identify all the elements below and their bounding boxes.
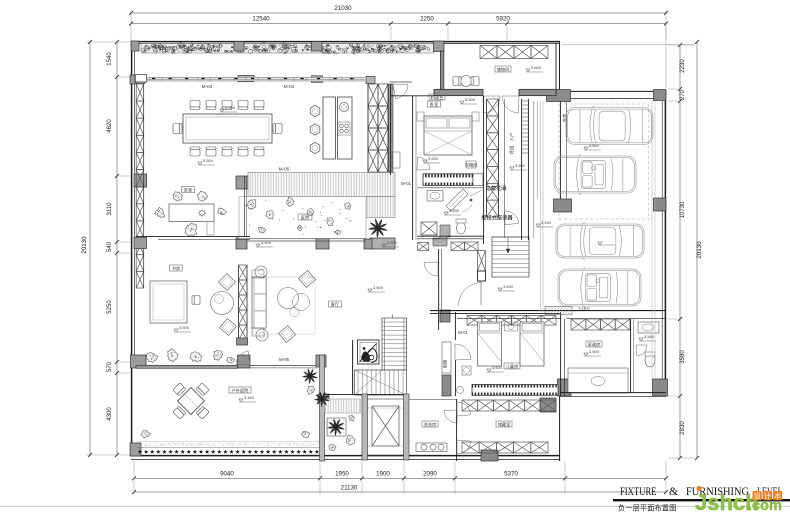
svg-text:3.585: 3.585 [644, 334, 655, 339]
svg-text:3580: 3580 [680, 350, 686, 364]
svg-text:M-04: M-04 [284, 84, 295, 89]
svg-text:570: 570 [107, 361, 113, 372]
svg-text:下3车位: 下3车位 [578, 306, 591, 311]
svg-text:5370: 5370 [504, 471, 518, 478]
svg-text:M-01: M-01 [458, 330, 468, 335]
svg-text:5.500: 5.500 [225, 105, 236, 110]
svg-text:5250: 5250 [107, 300, 113, 314]
svg-text:储物间: 储物间 [497, 66, 510, 73]
svg-text:&: & [669, 484, 678, 498]
svg-text:本: 本 [774, 491, 782, 501]
svg-text:3110: 3110 [107, 202, 113, 216]
svg-text:3.600: 3.600 [428, 156, 439, 161]
svg-text:户外庭院: 户外庭院 [232, 387, 250, 394]
svg-text:3.450: 3.450 [541, 220, 552, 225]
svg-text:3.600: 3.600 [492, 365, 503, 370]
svg-text:3.600: 3.600 [515, 163, 526, 168]
svg-text:2830: 2830 [680, 421, 686, 435]
svg-text:21130: 21130 [341, 484, 358, 491]
svg-text:1540: 1540 [107, 52, 113, 66]
svg-text:9040: 9040 [220, 471, 234, 478]
svg-text:M-06: M-06 [279, 357, 290, 362]
svg-text:20130: 20130 [81, 236, 88, 254]
svg-text:270: 270 [680, 89, 686, 100]
svg-text:540: 540 [107, 241, 113, 252]
svg-text:4620: 4620 [107, 119, 113, 133]
svg-text:3.600: 3.600 [373, 285, 384, 290]
svg-text:21030: 21030 [334, 5, 352, 12]
svg-text:计: 计 [764, 491, 772, 501]
svg-text:4300: 4300 [107, 407, 113, 421]
svg-text:书房: 书房 [172, 265, 180, 272]
svg-text:1950: 1950 [335, 471, 349, 478]
svg-text:5.500: 5.500 [203, 158, 214, 163]
svg-text:3.600: 3.600 [589, 349, 600, 354]
svg-text:3.450: 3.450 [503, 284, 514, 289]
svg-text:2230: 2230 [680, 59, 686, 73]
svg-text:儿童房: 儿童房 [506, 363, 519, 370]
svg-text:20130: 20130 [696, 241, 703, 259]
svg-text:储藏室: 储藏室 [498, 421, 511, 428]
svg-text:洗衣房: 洗衣房 [424, 421, 437, 428]
svg-text:隐藏花洒: 隐藏花洒 [486, 184, 507, 192]
svg-text:花园: 花园 [508, 146, 515, 154]
svg-text:庭院: 庭院 [301, 214, 310, 221]
svg-text:2090: 2090 [423, 471, 437, 478]
svg-text:W-01: W-01 [401, 181, 412, 186]
svg-text:3.600: 3.600 [261, 240, 272, 245]
svg-text:3.550: 3.550 [449, 208, 460, 213]
svg-text:2250: 2250 [420, 16, 434, 23]
svg-text:FIXTURE: FIXTURE [620, 484, 657, 498]
svg-text:入户: 入户 [508, 133, 515, 141]
svg-text:3.600: 3.600 [387, 240, 398, 245]
svg-text:12540: 12540 [252, 16, 270, 23]
svg-text:设: 设 [753, 491, 761, 501]
svg-text:5.500: 5.500 [465, 97, 476, 102]
svg-text:10730: 10730 [680, 201, 686, 218]
svg-text:家政房: 家政房 [588, 341, 601, 348]
svg-text:3.600: 3.600 [531, 65, 542, 70]
svg-text:1900: 1900 [376, 471, 390, 478]
svg-text:3.600: 3.600 [179, 325, 190, 330]
svg-text:3.450: 3.450 [244, 395, 255, 400]
svg-text:3.450: 3.450 [589, 143, 600, 148]
svg-text:M-05: M-05 [279, 167, 290, 172]
svg-text:卧室: 卧室 [430, 101, 438, 108]
svg-text:车库: 车库 [561, 114, 568, 122]
svg-text:负一层平面布置图: 负一层平面布置图 [618, 504, 676, 513]
svg-text:茶室: 茶室 [184, 186, 192, 192]
svg-text:客厅: 客厅 [331, 301, 339, 308]
svg-text:衣帽间: 衣帽间 [465, 161, 478, 168]
svg-text:5920: 5920 [496, 16, 510, 23]
svg-text:M-04: M-04 [202, 84, 213, 89]
svg-text:电梯: 电梯 [442, 360, 449, 368]
